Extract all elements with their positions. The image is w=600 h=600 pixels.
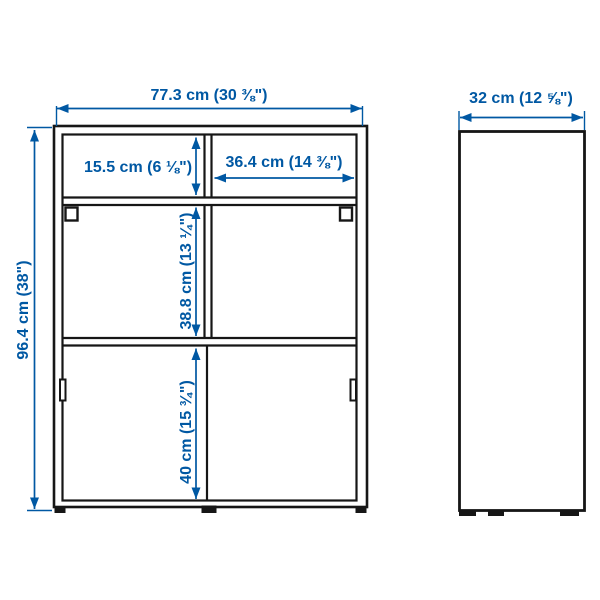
side-panel-foot (459, 511, 476, 517)
door-handle-slot-left (60, 380, 66, 401)
cabinet-foot (202, 506, 217, 514)
depth-dimension-label: 32 cm (12 ⅝") (469, 90, 573, 107)
product-dimension-diagram: 77.3 cm (30 ⅜") 96.4 cm (38") 15.5 cm (6… (0, 0, 600, 600)
middle-compartment-height-label: 38.8 cm (13 ¼") (178, 213, 195, 330)
front-view-drawing (54, 126, 367, 513)
side-panel-foot (560, 511, 579, 517)
height-dimension-label: 96.4 cm (38") (15, 260, 32, 359)
door-handle-left (66, 208, 78, 221)
dimension-drawing: 77.3 cm (30 ⅜") 96.4 cm (38") 15.5 cm (6… (0, 0, 600, 600)
door-handle-slot-right (351, 380, 357, 401)
bottom-compartment-height-label: 40 cm (15 ¾") (178, 380, 195, 484)
cabinet-foot (356, 507, 367, 513)
side-panel-outline (460, 132, 585, 511)
width-dimension-label: 77.3 cm (30 ⅜") (151, 87, 268, 104)
side-view-drawing (459, 132, 585, 517)
cabinet-foot (55, 507, 66, 513)
top-compartment-width-label: 36.4 cm (14 ⅜") (226, 154, 343, 171)
door-handle-right (340, 208, 352, 221)
top-shelf-height-label: 15.5 cm (6 ⅛") (84, 159, 192, 176)
side-panel-foot (488, 511, 504, 517)
